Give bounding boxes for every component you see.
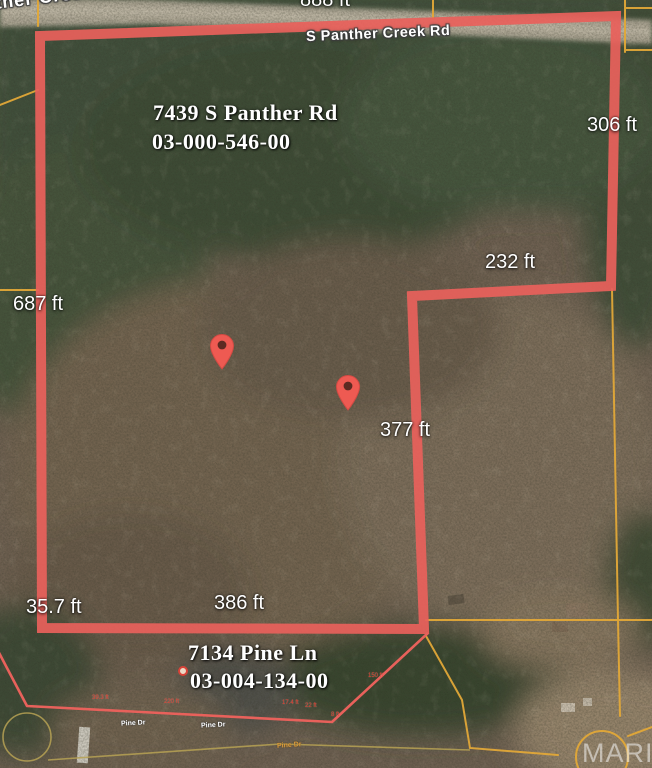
satellite-background xyxy=(0,0,652,768)
small-ring-marker xyxy=(179,667,187,675)
satellite-map-layer xyxy=(0,0,652,768)
map-canvas[interactable]: ther Creek Rd S Panther Creek Rd 888 ft … xyxy=(0,0,652,768)
